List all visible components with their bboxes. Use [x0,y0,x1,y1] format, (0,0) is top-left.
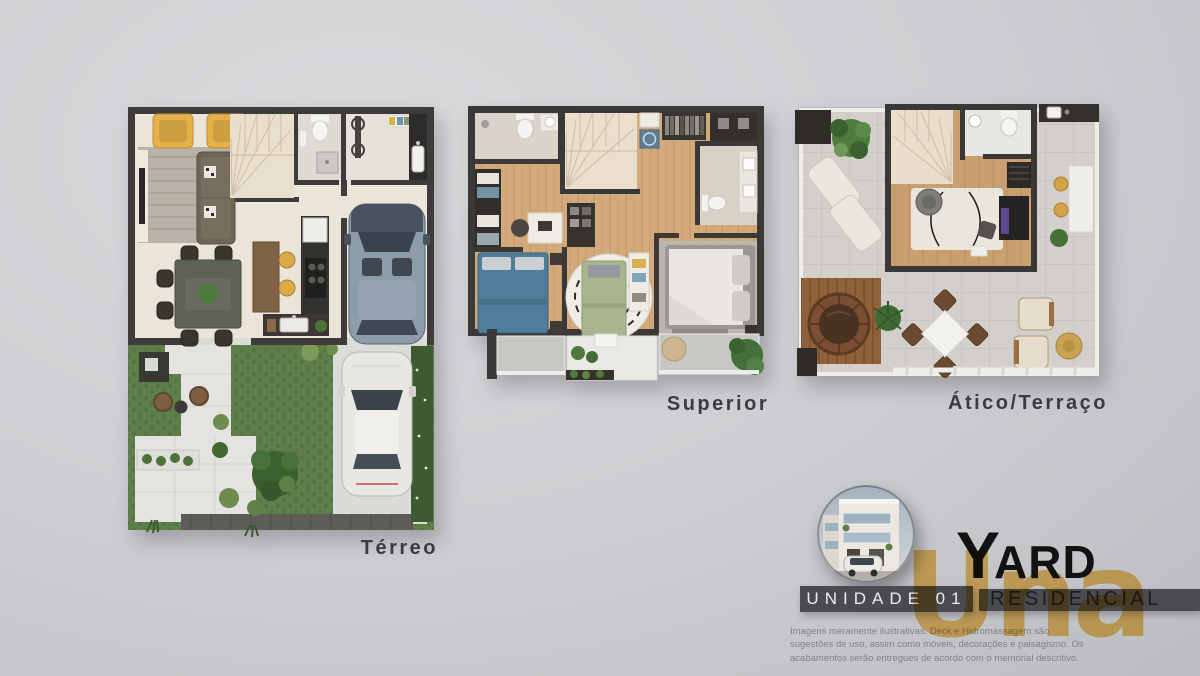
sofa [197,152,235,244]
sink [1047,107,1061,118]
terreo-house [128,107,434,346]
atico-plan-drawing [793,96,1108,388]
pouf [662,337,686,361]
utility-closet [1007,162,1031,188]
building-photo-badge [817,485,915,583]
superior-plan-drawing [462,103,768,393]
bicycle [355,116,361,158]
plant [1050,229,1068,247]
stool [279,252,295,268]
garage-car [344,204,430,344]
laundry-storage [346,114,427,180]
kitchen-island [253,242,279,312]
bathroom-right [695,141,757,225]
staircase [560,113,640,194]
herb-plant [315,320,327,332]
unit-banner: UNIDADE 01 [800,586,973,612]
toilet [517,119,533,139]
fridge [303,218,327,242]
desk-chair [511,219,529,237]
bathroom [298,114,341,180]
disclaimer-text: Imagens meramente ilustrativas. Deck e H… [790,625,1090,665]
toilet [1001,118,1017,136]
balconies [487,329,764,380]
atico-label: Ático/Terraço [927,392,1129,415]
yard-logo: YARD [956,526,1097,589]
tv [139,168,145,224]
building-render [817,485,915,583]
logo-subtitle: RESIDENCIAL [990,588,1162,611]
marketing-board: Térreo Superior Ático/Terraço [0,0,1200,676]
kitchen-sink [280,318,308,332]
tv-screen [1001,208,1009,234]
stool [279,280,295,296]
bathroom-left [475,113,563,164]
superior-label: Superior [638,393,798,416]
wardrobe-left [475,169,501,251]
toilet [312,121,328,141]
bar-stool [1054,203,1068,217]
logo-rest: ARD [994,535,1097,589]
terreo-plan-drawing [125,100,440,545]
hedge [411,346,433,522]
unit-label: UNIDADE 01 [806,589,966,609]
armchair [1014,336,1048,368]
tree [830,119,871,159]
staircase [230,114,294,198]
atico-floor-plan [793,96,1108,388]
sink [743,185,755,197]
superior-floor-plan [462,103,768,393]
balcony-glass [843,532,891,543]
terreo-label: Térreo [318,537,438,560]
bar-stool [1054,177,1068,191]
bedroom-master [659,241,757,337]
sink [969,115,981,127]
balcony-glass [843,513,891,524]
logo-initial: Y [956,526,998,584]
sink [412,146,424,172]
bar-counter [1069,166,1093,232]
armchair [1019,298,1053,330]
sink [743,158,755,170]
terreo-floor-plan [125,100,440,545]
planter-box [795,110,831,144]
driveway-car [338,352,416,496]
upper-room [885,104,1037,272]
toilet [708,196,726,210]
closet-top-right [710,113,757,141]
